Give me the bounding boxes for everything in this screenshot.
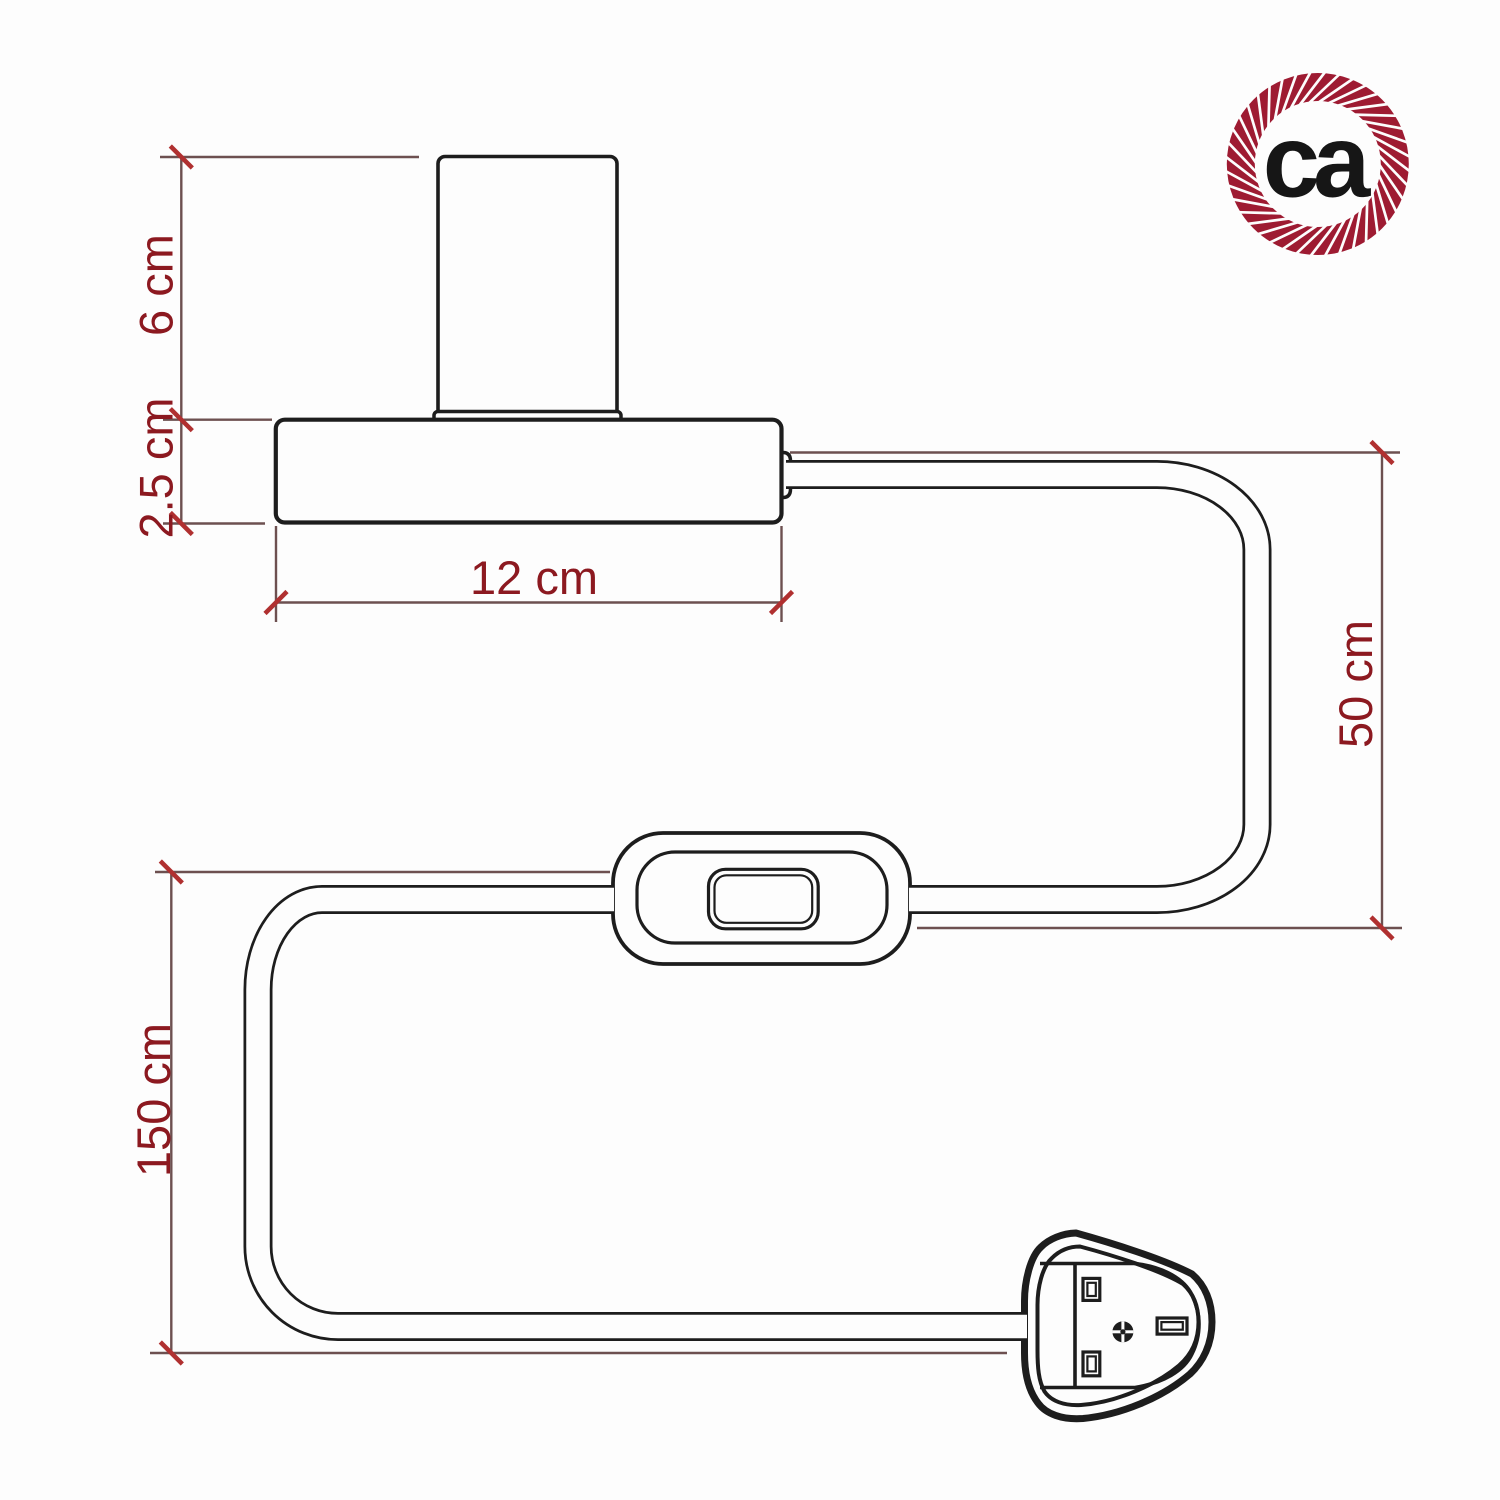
svg-text:50 cm: 50 cm: [1329, 620, 1382, 748]
svg-text:12 cm: 12 cm: [470, 551, 598, 604]
svg-text:ca: ca: [1263, 104, 1371, 219]
svg-text:2.5 cm: 2.5 cm: [130, 397, 183, 538]
svg-text:6 cm: 6 cm: [130, 234, 183, 336]
svg-text:150 cm: 150 cm: [127, 1023, 180, 1177]
